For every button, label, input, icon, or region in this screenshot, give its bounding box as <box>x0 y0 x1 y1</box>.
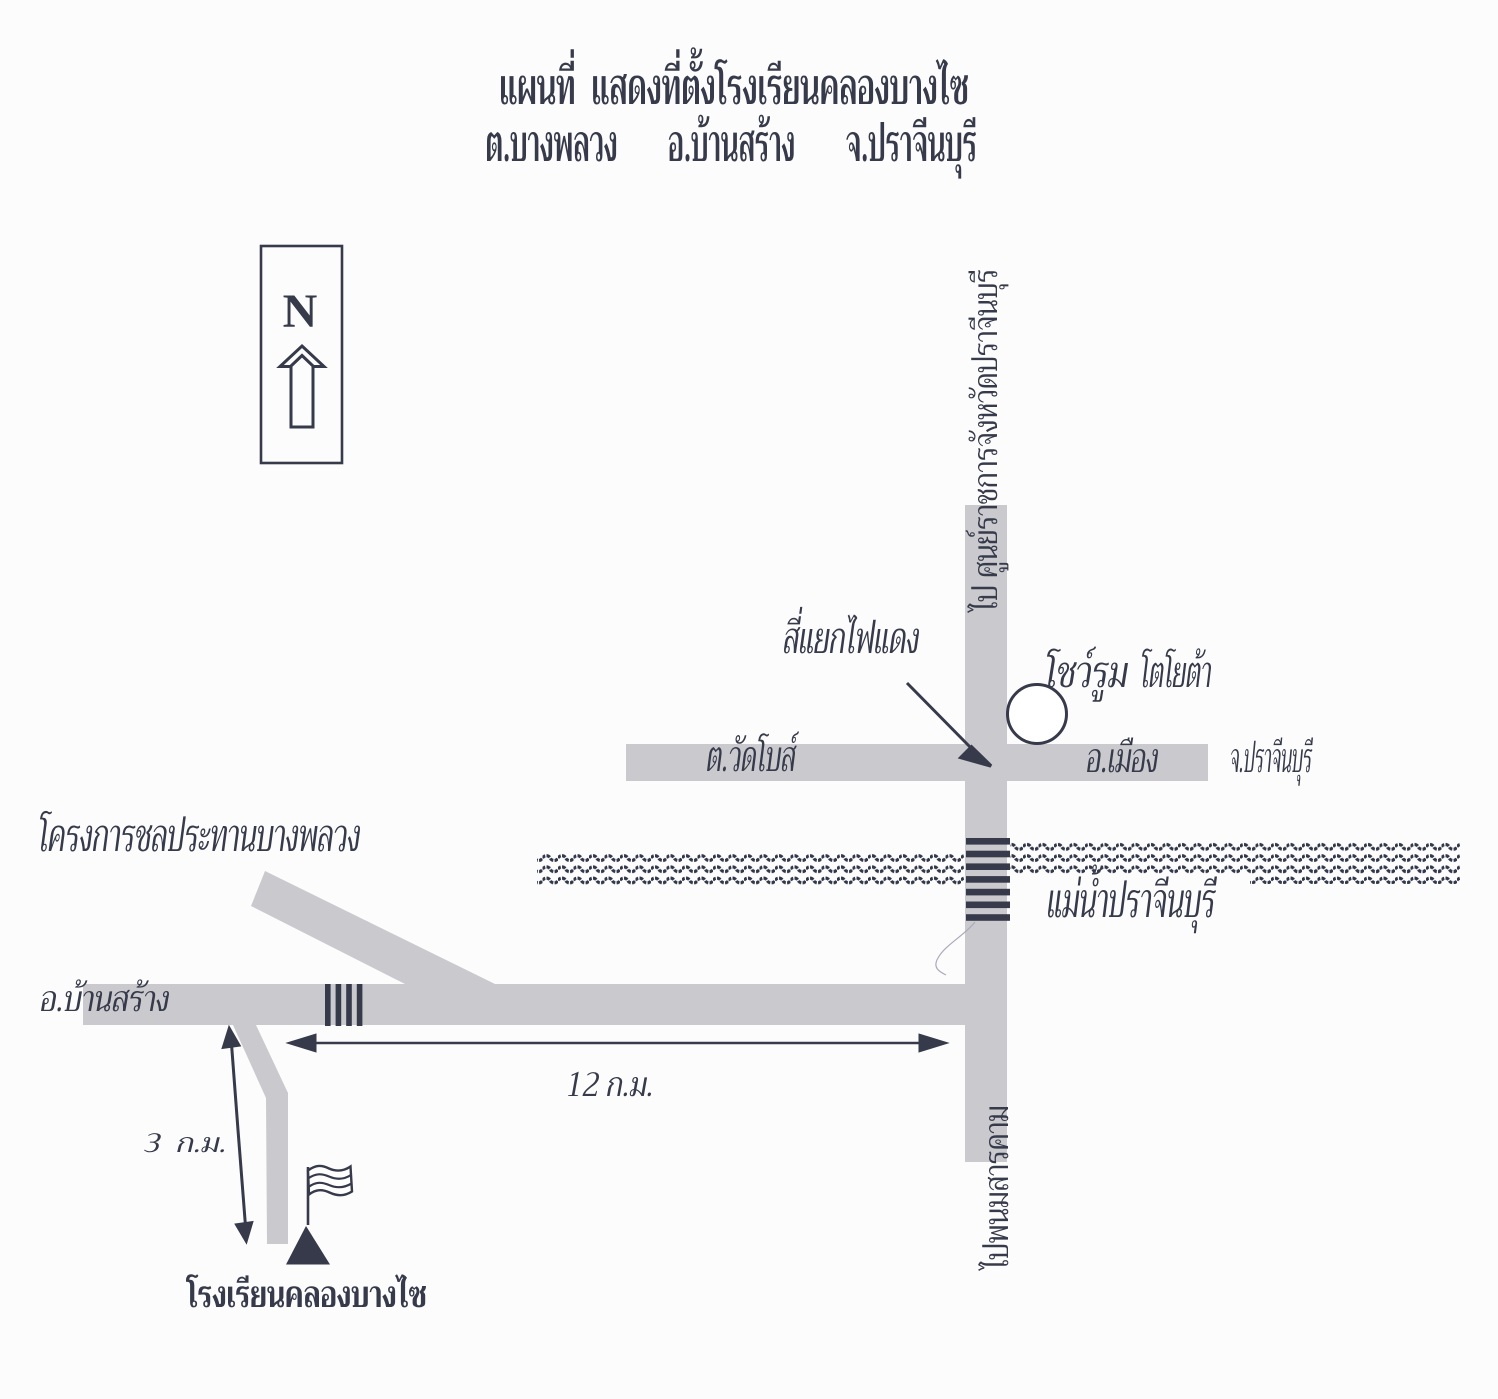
svg-text:N: N <box>283 285 318 338</box>
